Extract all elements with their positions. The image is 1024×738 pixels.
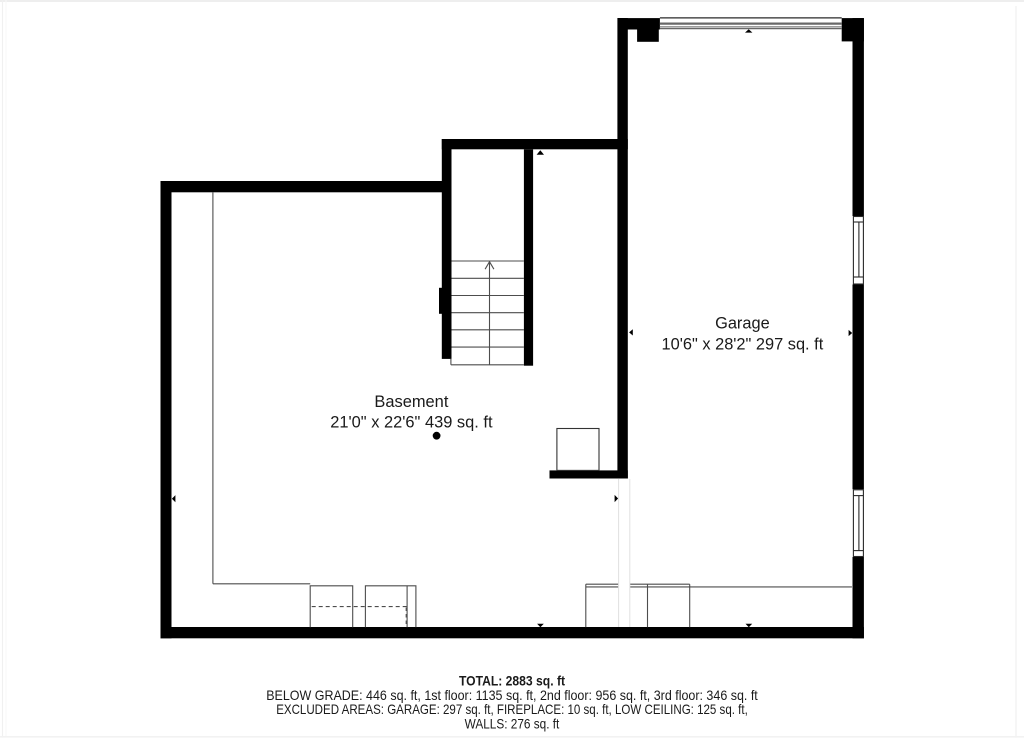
svg-text:21'0" x 22'6" 439 sq. ft: 21'0" x 22'6" 439 sq. ft: [330, 414, 493, 432]
svg-text:10'6" x 28'2" 297 sq. ft: 10'6" x 28'2" 297 sq. ft: [662, 336, 824, 354]
svg-text:Basement: Basement: [374, 393, 448, 411]
svg-text:WALLS: 276 sq. ft: WALLS: 276 sq. ft: [465, 716, 560, 732]
svg-text:Garage: Garage: [715, 315, 770, 333]
